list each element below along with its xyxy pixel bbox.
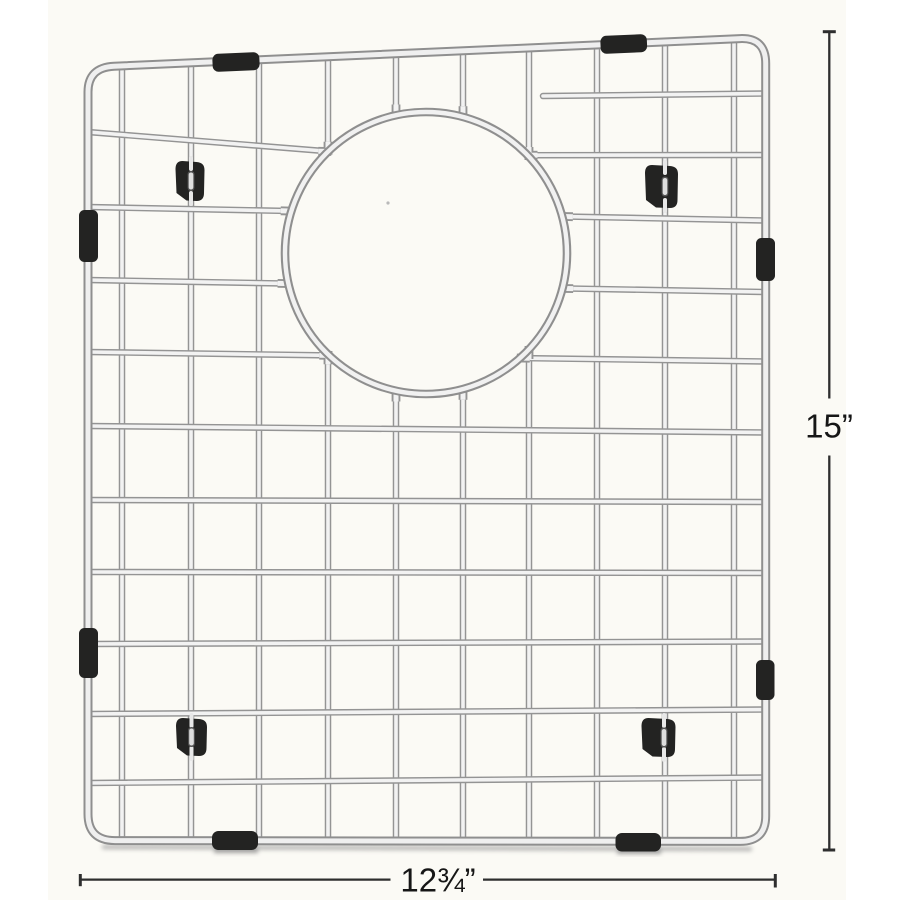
svg-text:15”: 15”: [805, 408, 853, 445]
svg-text:12¾”: 12¾”: [400, 862, 475, 899]
